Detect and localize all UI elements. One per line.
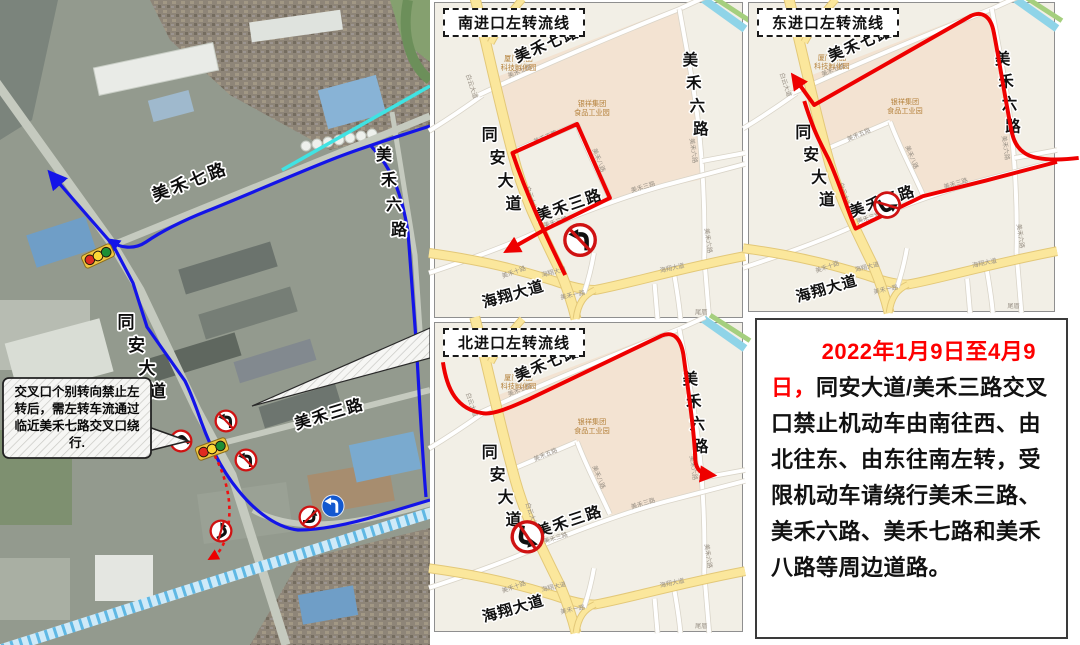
callout-line: 临近美禾七路交叉口绕 [14, 418, 140, 433]
poi-label: 食品工业园 [574, 108, 610, 117]
major-road-label: 路 [693, 119, 709, 138]
major-road-label: 安 [490, 465, 506, 484]
road-label-mei6: 路 [391, 220, 408, 239]
no-left-turn-sign [236, 450, 257, 471]
major-road-label: 安 [490, 148, 506, 167]
major-road-label: 道 [506, 194, 522, 213]
road-label-mei6: 美 [376, 145, 393, 164]
panel-title-east: 东进口左转流线 [757, 8, 899, 37]
major-road-label: 禾 [686, 74, 702, 92]
poi-label: 银祥集团 [578, 99, 607, 108]
no-left-turn-sign [565, 225, 595, 256]
poi-label: 银祥集团 [578, 417, 607, 426]
inset-map-east: 美禾七路美禾五路美禾八路美禾三路美禾三路白云大道白云大道美禾六路美禾六路海翔大道… [749, 3, 1054, 311]
poi-label: 食品工业园 [574, 426, 610, 435]
inset-map-north: 美禾七路美禾五路美禾八路美禾三路美禾三路白云大道白云大道美禾六路美禾六路海翔大道… [435, 323, 742, 631]
inset-map-south: 美禾七路美禾五路美禾八路美禾三路美禾三路白云大道白云大道美禾六路美禾六路海翔大道… [435, 3, 742, 317]
callout-line: 转后，需左转车流通过 [14, 401, 140, 416]
callout-line: 交叉口个别转向禁止左 [14, 384, 140, 399]
road-label-tongan: 大 [139, 358, 156, 378]
road-label-tongan: 同 [118, 313, 135, 332]
no-left-turn-sign [216, 411, 237, 432]
road-label-mei6: 禾 [381, 171, 397, 189]
major-road-label: 同 [482, 443, 498, 461]
left-turn-allowed-sign [322, 495, 344, 517]
minor-road-label: 尾厝 [695, 308, 708, 316]
panel-title-north: 北进口左转流线 [443, 328, 585, 357]
major-road-label: 大 [811, 168, 827, 187]
panel-south-entrance: 南进口左转流线 美禾七路美禾五路美禾八路美禾三路美禾三路白云大道白云大道美禾六路… [434, 2, 743, 318]
major-road-label: 大 [498, 171, 514, 190]
notice-paragraph: 2022年1月9日至4月9日，同安大道/美禾三路交叉口禁止机动车由南往西、由北往… [771, 334, 1058, 586]
major-road-label: 同 [795, 123, 811, 141]
minor-road-label: 尾厝 [695, 623, 708, 630]
panel-title-south: 南进口左转流线 [443, 8, 585, 37]
road-label-mei6: 六 [386, 195, 402, 214]
satellite-map: 美禾七路美禾六路同安大道美禾三路 交叉口个别转向禁止左转后，需左转车流通过临近美… [0, 0, 430, 645]
major-road-label: 安 [803, 145, 819, 164]
minor-road-label: 尾厝 [1007, 303, 1019, 310]
major-road-label: 大 [498, 488, 514, 507]
major-road-label: 美 [683, 50, 699, 69]
notice-text-panel: 2022年1月9日至4月9日，同安大道/美禾三路交叉口禁止机动车由南往西、由北往… [755, 318, 1068, 639]
major-road-label: 六 [690, 96, 706, 115]
panel-north-entrance: 北进口左转流线 美禾七路美禾五路美禾八路美禾三路美禾三路白云大道白云大道美禾六路… [434, 322, 743, 632]
traffic-notice-infographic: 美禾七路美禾六路同安大道美禾三路 交叉口个别转向禁止左转后，需左转车流通过临近美… [0, 0, 1080, 645]
poi-label: 银祥集团 [891, 97, 919, 106]
major-road-label: 道 [819, 190, 835, 209]
no-left-turn-sign [300, 507, 321, 528]
notice-body: 同安大道/美禾三路交叉口禁止机动车由南往西、由北往东、由东往南左转，受限机动车请… [771, 375, 1048, 580]
major-road-label: 同 [482, 126, 498, 144]
poi-label: 食品工业园 [887, 106, 923, 115]
road-label-tongan: 安 [128, 335, 145, 355]
satellite-map-svg: 美禾七路美禾六路同安大道美禾三路 交叉口个别转向禁止左转后，需左转车流通过临近美… [0, 0, 430, 645]
panel-east-entrance: 东进口左转流线 美禾七路美禾五路美禾八路美禾三路美禾三路白云大道白云大道美禾六路… [748, 2, 1055, 312]
callout-line: 行. [68, 435, 85, 450]
